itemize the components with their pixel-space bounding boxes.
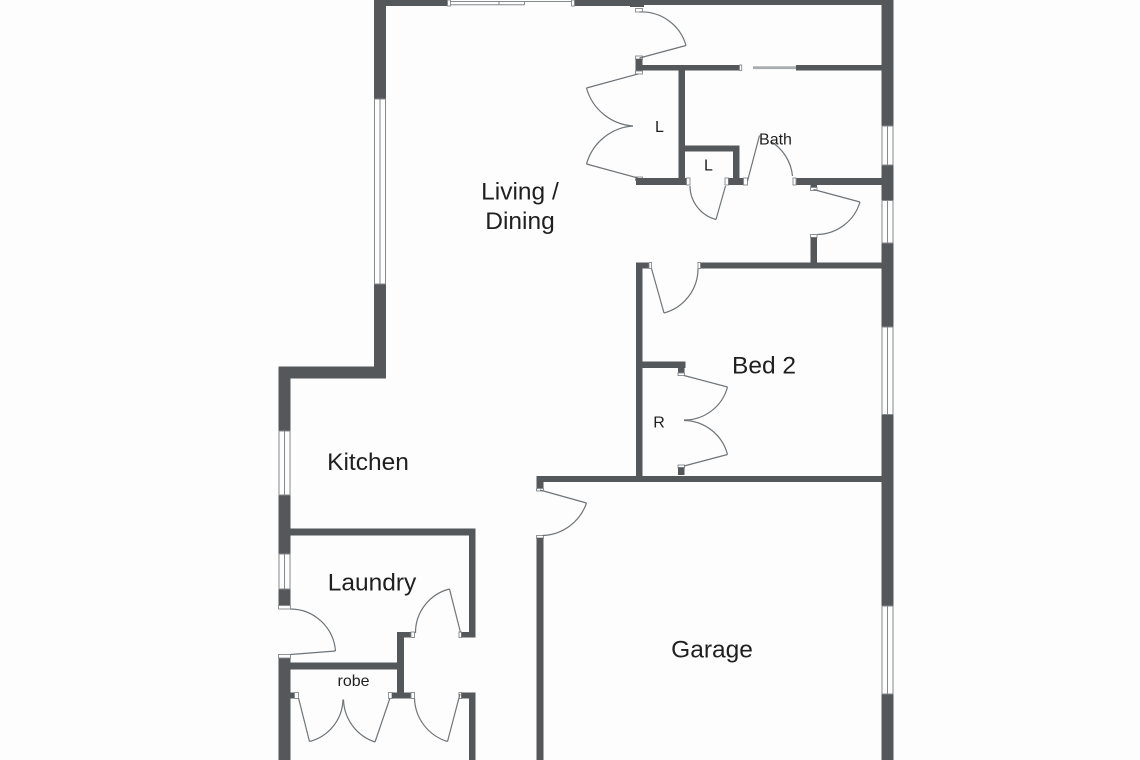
svg-text:Laundry: Laundry [328, 570, 417, 597]
svg-text:Living /: Living / [481, 179, 559, 206]
svg-text:Bath: Bath [759, 132, 792, 149]
svg-text:Dining: Dining [485, 208, 554, 235]
svg-text:L: L [655, 119, 664, 136]
svg-text:robe: robe [337, 673, 369, 690]
svg-text:Garage: Garage [671, 637, 753, 664]
svg-text:Kitchen: Kitchen [327, 449, 409, 476]
svg-text:R: R [653, 415, 665, 432]
svg-text:L: L [704, 158, 713, 175]
svg-text:Bed 2: Bed 2 [732, 353, 796, 380]
